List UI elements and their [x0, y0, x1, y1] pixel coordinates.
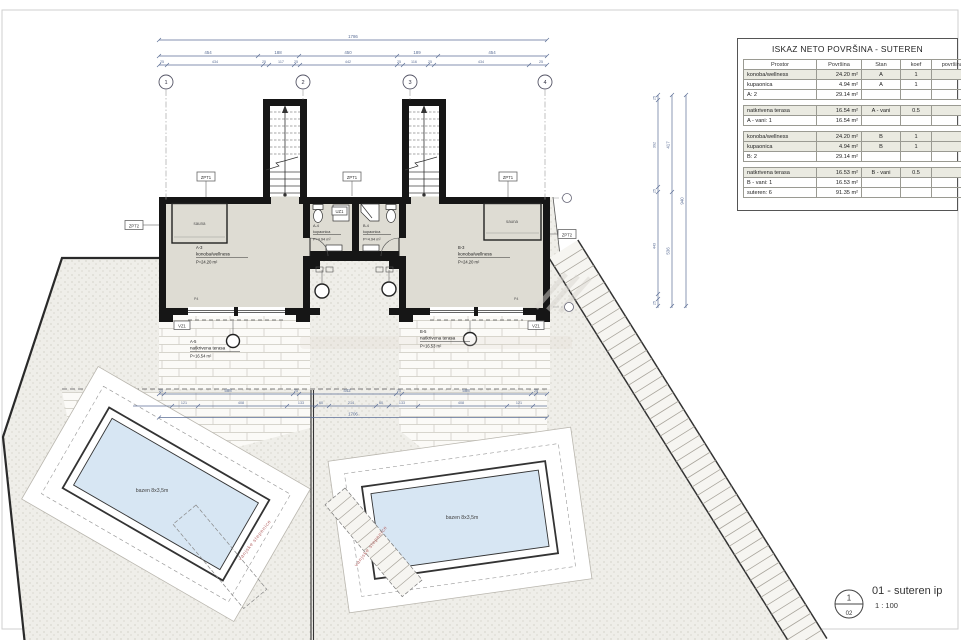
building: [159, 99, 550, 320]
sheet-total: 02: [846, 611, 853, 617]
svg-text:25: 25: [397, 60, 401, 64]
svg-text:417: 417: [666, 141, 671, 149]
title-block: 1 02 01 - suteren ip 1 : 100: [830, 585, 960, 627]
grid-bubble-3: 3: [408, 80, 411, 86]
courtyard: [310, 261, 399, 315]
terrace-b: [399, 315, 550, 389]
svg-text:25: 25: [539, 60, 543, 64]
tag-zpt2: ZPT2: [562, 232, 573, 237]
table-row: kupaonica4.94 m²A14.94 m²: [744, 80, 961, 90]
svg-text:121: 121: [181, 401, 187, 405]
svg-text:25: 25: [397, 389, 401, 393]
p4-tag: P4: [514, 297, 518, 301]
table-header-cell: Stan: [862, 60, 901, 70]
area-table: ISKAZ NETO POVRŠINA - SUTEREN ProstorPov…: [737, 38, 958, 211]
table-row: A: 229.14 m²29.14 m²: [744, 90, 961, 100]
sauna-a-label: sauna: [194, 221, 207, 226]
svg-text:133: 133: [399, 401, 405, 405]
svg-text:408: 408: [238, 401, 244, 405]
svg-text:133: 133: [298, 401, 304, 405]
tag-zpt1: ZPT1: [201, 175, 212, 180]
floor-plan-sheet: vanjske stepenice vanjske stepenice 1 2 …: [0, 0, 961, 640]
terrace-a-name: natkrivena terasa: [190, 346, 226, 351]
svg-text:450: 450: [344, 50, 352, 55]
grid-bubble-4: 4: [543, 80, 546, 86]
room-b-name: konoba/wellness: [458, 252, 493, 257]
svg-text:A-3: A-3: [196, 245, 203, 250]
p4-tag: P4: [194, 297, 198, 301]
bath-a-name: kupaonica: [313, 230, 331, 234]
svg-text:A-5: A-5: [190, 339, 197, 344]
svg-text:B-4: B-4: [363, 224, 369, 228]
stairs-b: [402, 99, 446, 205]
svg-text:25: 25: [428, 60, 432, 64]
drawing-scale: 1 : 100: [875, 601, 942, 610]
svg-text:1706: 1706: [348, 411, 358, 416]
table-row: konoba/wellness24.20 m²B124.20 m²: [744, 132, 961, 142]
svg-text:121: 121: [516, 401, 522, 405]
courtyard-column: [315, 284, 329, 298]
svg-text:588: 588: [462, 388, 470, 393]
svg-text:442: 442: [345, 60, 351, 64]
svg-text:25: 25: [160, 60, 164, 64]
table-row: kupaonica4.94 m²B14.94 m²: [744, 142, 961, 152]
bath-b-name: kupaonica: [363, 230, 381, 234]
svg-text:443: 443: [653, 243, 657, 249]
area-table-title: ISKAZ NETO POVRŠINA - SUTEREN: [743, 42, 952, 59]
pool-b-label: bazen 8x3,5m: [446, 515, 479, 521]
table-row: B - vani: 116.53 m²8.26 m²: [744, 178, 961, 188]
tag-zpt1: ZPT1: [503, 175, 514, 180]
svg-text:25: 25: [653, 189, 657, 193]
svg-text:454: 454: [204, 50, 212, 55]
svg-text:442: 442: [343, 388, 351, 393]
svg-text:A-4: A-4: [313, 224, 319, 228]
svg-text:60: 60: [379, 401, 383, 405]
drawing-title: 01 - suteren ip: [872, 585, 942, 597]
table-header-cell: Površina: [817, 60, 862, 70]
svg-text:P=16.53 m²: P=16.53 m²: [420, 344, 442, 349]
sheet-number-symbol: 1 02: [830, 585, 868, 623]
svg-text:25: 25: [159, 389, 163, 393]
terrace-b-name: natkrivena terasa: [420, 336, 456, 341]
svg-text:189: 189: [413, 50, 421, 55]
svg-text:P=16.54 m²: P=16.54 m²: [190, 354, 212, 359]
svg-text:940: 940: [680, 197, 685, 205]
table-row: natkrivena terasa16.54 m²A - vani0.58.27…: [744, 106, 961, 116]
svg-text:117: 117: [278, 60, 284, 64]
table-row: B: 229.14 m²29.14 m²: [744, 152, 961, 162]
stairs-a: [263, 99, 307, 205]
svg-text:60: 60: [319, 401, 323, 405]
svg-text:P=4.94 m²: P=4.94 m²: [363, 238, 381, 242]
svg-text:116: 116: [411, 60, 417, 64]
tag-vz1: VZ1: [178, 324, 186, 329]
svg-text:536: 536: [666, 247, 671, 255]
table-header-cell: koef: [901, 60, 932, 70]
svg-text:B-5: B-5: [420, 329, 427, 334]
svg-text:454: 454: [488, 50, 496, 55]
tag-uz1: UZ1: [336, 209, 345, 214]
svg-text:25: 25: [534, 389, 538, 393]
svg-text:25: 25: [262, 60, 266, 64]
svg-text:25: 25: [294, 60, 298, 64]
grid-bubble-2: 2: [301, 80, 304, 86]
room-a-name: konoba/wellness: [196, 252, 231, 257]
sheet-number: 1: [847, 594, 852, 603]
svg-text:188: 188: [274, 50, 282, 55]
sauna-b-label: sauna: [506, 219, 519, 224]
area-table-header: ProstorPovršinaStankoefpovršina s koef: [744, 60, 961, 70]
svg-text:434: 434: [212, 60, 218, 64]
svg-text:P=24.20 m²: P=24.20 m²: [458, 260, 480, 265]
svg-text:392: 392: [653, 142, 657, 148]
svg-text:588: 588: [224, 388, 232, 393]
grid-bubble-1: 1: [164, 80, 167, 86]
table-row: suteren: 691.35 m²74.82 m²: [744, 188, 961, 198]
tag-vz1: VZ1: [532, 324, 540, 329]
table-row: konoba/wellness24.20 m²A124.20 m²: [744, 70, 961, 80]
table-row: A - vani: 116.54 m²8.27 m²: [744, 116, 961, 126]
pool-a-label: bazen 8x3,5m: [136, 488, 169, 494]
courtyard-column: [382, 282, 396, 296]
table-row: natkrivena terasa16.53 m²B - vani0.58.26…: [744, 168, 961, 178]
svg-text:408: 408: [458, 401, 464, 405]
svg-text:1786: 1786: [348, 34, 358, 39]
terrace-column: [227, 335, 240, 348]
svg-text:25: 25: [653, 301, 657, 305]
table-header-cell: Prostor: [744, 60, 817, 70]
table-header-cell: površina s koef: [932, 60, 961, 70]
tag-zpt2: ZPT2: [129, 223, 140, 228]
svg-text:B-3: B-3: [458, 245, 465, 250]
svg-text:25: 25: [294, 389, 298, 393]
svg-text:434: 434: [478, 60, 484, 64]
svg-text:P=4.94 m²: P=4.94 m²: [313, 238, 331, 242]
svg-text:25: 25: [653, 96, 657, 100]
tag-zpt1: ZPT1: [347, 175, 358, 180]
svg-text:214: 214: [348, 401, 354, 405]
svg-text:P=24.20 m²: P=24.20 m²: [196, 260, 218, 265]
